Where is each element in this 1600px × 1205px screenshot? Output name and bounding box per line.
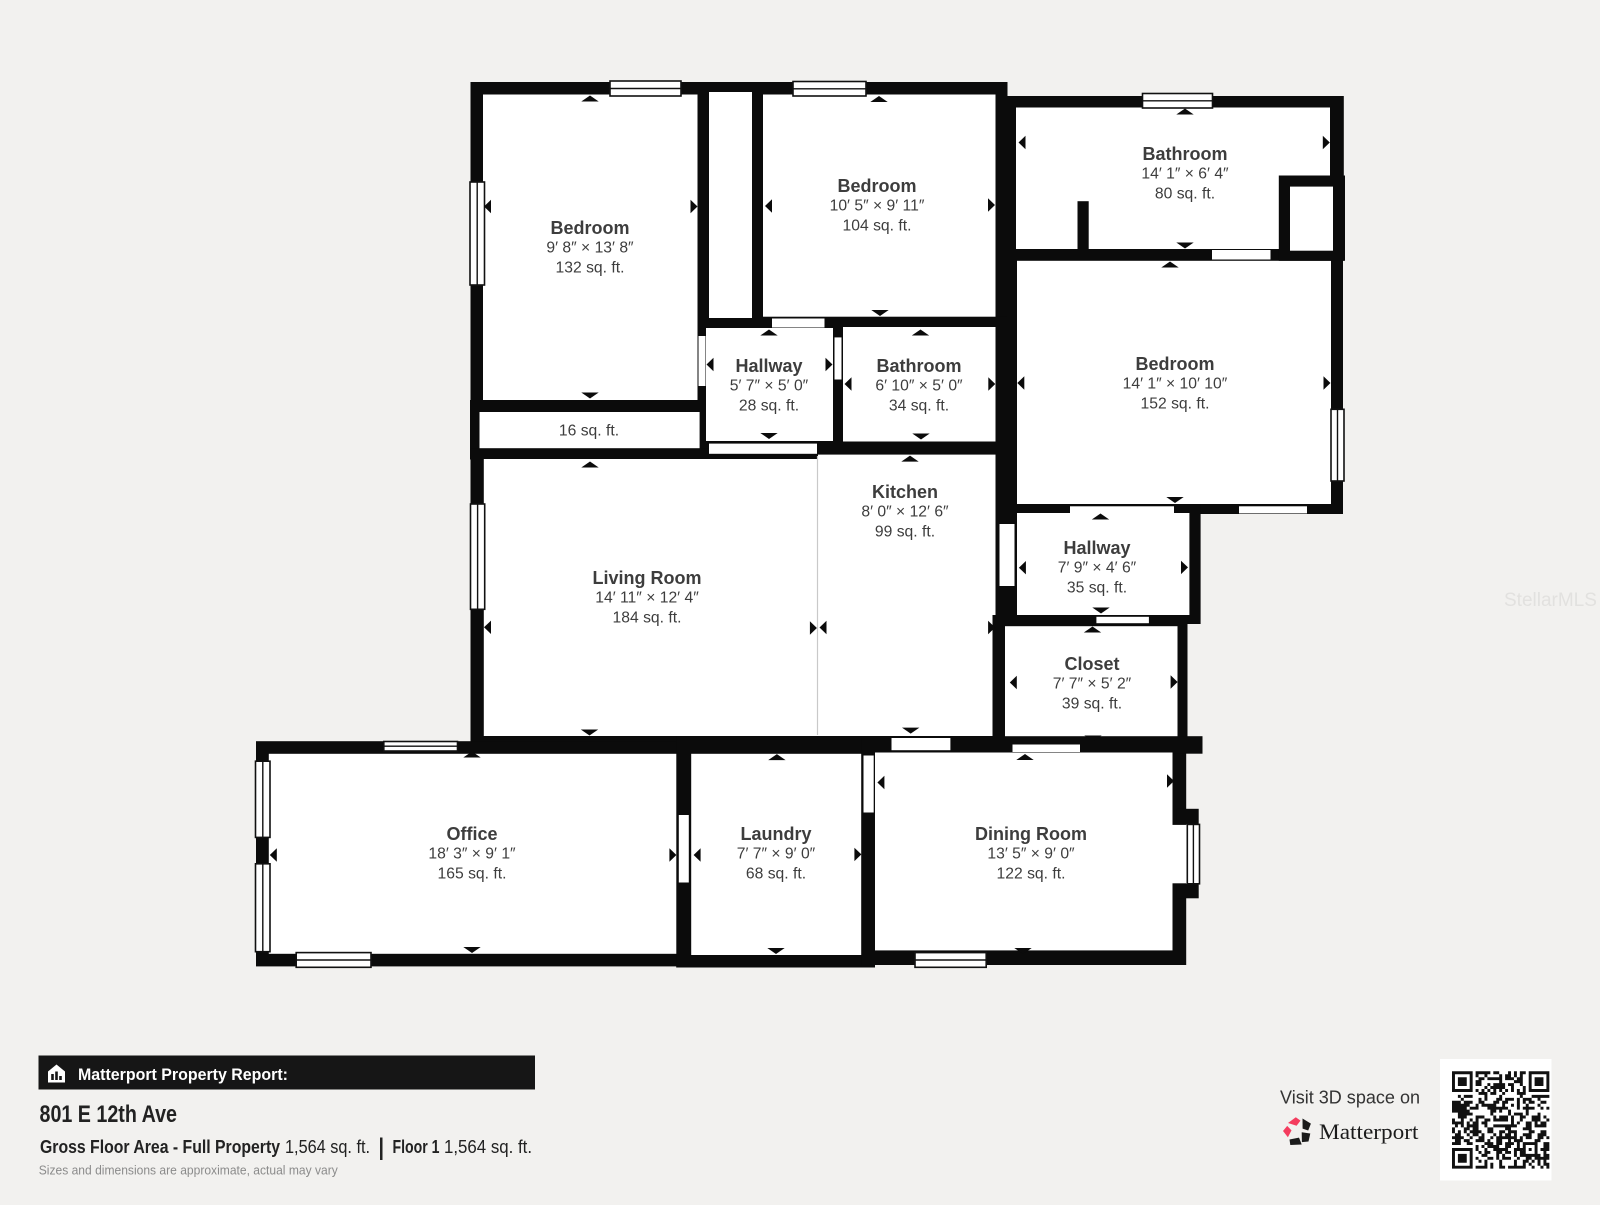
svg-text:Gross Floor Area - Full Proper: Gross Floor Area - Full Property: [40, 1137, 280, 1157]
svg-text:Floor 1: Floor 1: [393, 1137, 440, 1157]
svg-text:132 sq. ft.: 132 sq. ft.: [556, 260, 625, 277]
svg-text:35 sq. ft.: 35 sq. ft.: [1067, 580, 1127, 597]
svg-text:5′ 7″ × 5′ 0″: 5′ 7″ × 5′ 0″: [730, 378, 809, 395]
svg-text:14′ 11″ × 12′ 4″: 14′ 11″ × 12′ 4″: [595, 590, 699, 607]
svg-text:7′ 7″ × 5′ 2″: 7′ 7″ × 5′ 2″: [1053, 676, 1132, 693]
svg-text:Living Room: Living Room: [593, 568, 702, 588]
svg-text:Bathroom: Bathroom: [1143, 144, 1228, 164]
svg-text:80 sq. ft.: 80 sq. ft.: [1155, 186, 1215, 203]
svg-text:1,564 sq. ft.: 1,564 sq. ft.: [444, 1137, 532, 1157]
svg-text:Matterport Property Report:: Matterport Property Report:: [78, 1065, 288, 1084]
svg-text:7′ 7″ × 9′ 0″: 7′ 7″ × 9′ 0″: [737, 846, 816, 863]
svg-text:Dining Room: Dining Room: [975, 824, 1087, 844]
svg-text:104 sq. ft.: 104 sq. ft.: [843, 218, 912, 235]
svg-text:34 sq. ft.: 34 sq. ft.: [889, 398, 949, 415]
svg-text:801 E 12th Ave: 801 E 12th Ave: [40, 1101, 178, 1128]
svg-text:8′ 0″ × 12′ 6″: 8′ 0″ × 12′ 6″: [861, 504, 949, 521]
svg-text:Kitchen: Kitchen: [872, 482, 938, 502]
svg-text:StellarMLS: StellarMLS: [1504, 590, 1597, 611]
svg-text:Hallway: Hallway: [1063, 538, 1130, 558]
svg-text:13′ 5″ × 9′ 0″: 13′ 5″ × 9′ 0″: [987, 846, 1075, 863]
svg-text:28 sq. ft.: 28 sq. ft.: [739, 398, 799, 415]
svg-text:152 sq. ft.: 152 sq. ft.: [1141, 396, 1210, 413]
svg-text:39 sq. ft.: 39 sq. ft.: [1062, 696, 1122, 713]
svg-text:18′ 3″ × 9′ 1″: 18′ 3″ × 9′ 1″: [428, 846, 516, 863]
svg-text:1,564 sq. ft.: 1,564 sq. ft.: [285, 1137, 370, 1157]
svg-text:Bedroom: Bedroom: [837, 176, 916, 196]
svg-text:6′ 10″ × 5′ 0″: 6′ 10″ × 5′ 0″: [875, 378, 963, 395]
svg-text:Hallway: Hallway: [735, 356, 802, 376]
svg-text:122 sq. ft.: 122 sq. ft.: [997, 866, 1066, 883]
svg-text:68 sq. ft.: 68 sq. ft.: [746, 866, 806, 883]
svg-text:Visit 3D space on: Visit 3D space on: [1280, 1088, 1420, 1108]
svg-text:10′ 5″ × 9′ 11″: 10′ 5″ × 9′ 11″: [830, 198, 925, 215]
svg-text:Sizes and dimensions are appro: Sizes and dimensions are approximate, ac…: [39, 1163, 338, 1178]
svg-text:Office: Office: [446, 824, 497, 844]
svg-text:16 sq. ft.: 16 sq. ft.: [559, 423, 619, 440]
svg-text:184 sq. ft.: 184 sq. ft.: [613, 610, 682, 627]
svg-text:Bedroom: Bedroom: [1135, 354, 1214, 374]
svg-text:Matterport: Matterport: [1319, 1119, 1419, 1144]
svg-text:14′ 1″ × 10′ 10″: 14′ 1″ × 10′ 10″: [1123, 376, 1228, 393]
svg-text:Bedroom: Bedroom: [550, 218, 629, 238]
svg-text:Closet: Closet: [1064, 654, 1119, 674]
svg-text:Bathroom: Bathroom: [877, 356, 962, 376]
svg-text:Laundry: Laundry: [740, 824, 811, 844]
svg-text:99 sq. ft.: 99 sq. ft.: [875, 524, 935, 541]
svg-text:165 sq. ft.: 165 sq. ft.: [438, 866, 507, 883]
svg-text:9′ 8″ × 13′ 8″: 9′ 8″ × 13′ 8″: [546, 240, 634, 257]
svg-text:7′ 9″ × 4′ 6″: 7′ 9″ × 4′ 6″: [1058, 560, 1137, 577]
svg-text:14′ 1″ × 6′ 4″: 14′ 1″ × 6′ 4″: [1141, 166, 1229, 183]
